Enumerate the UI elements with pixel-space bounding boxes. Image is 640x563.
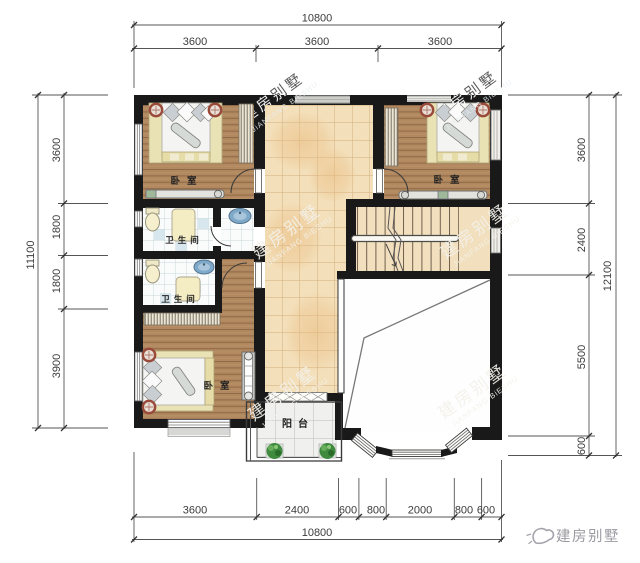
svg-text:2400: 2400: [576, 228, 588, 252]
svg-text:1800: 1800: [51, 215, 63, 239]
svg-text:3900: 3900: [51, 354, 63, 378]
svg-text:卫生间: 卫生间: [165, 235, 203, 245]
svg-text:10800: 10800: [302, 13, 333, 25]
svg-text:10800: 10800: [302, 527, 333, 539]
svg-text:800: 800: [455, 505, 473, 517]
svg-text:5500: 5500: [576, 345, 588, 369]
svg-text:卫生间: 卫生间: [161, 294, 199, 304]
svg-text:卧室: 卧室: [203, 380, 236, 392]
svg-text:3600: 3600: [576, 138, 588, 162]
svg-text:3600: 3600: [428, 36, 452, 48]
svg-text:3600: 3600: [51, 138, 63, 162]
svg-text:2400: 2400: [285, 505, 309, 517]
svg-text:600: 600: [339, 505, 357, 517]
svg-text:800: 800: [367, 505, 385, 517]
svg-text:1800: 1800: [51, 269, 63, 293]
svg-text:3600: 3600: [305, 36, 329, 48]
svg-text:600: 600: [477, 505, 495, 517]
svg-text:卧室: 卧室: [433, 174, 466, 186]
svg-text:2000: 2000: [408, 505, 432, 517]
svg-text:3600: 3600: [183, 505, 207, 517]
svg-text:3600: 3600: [183, 36, 207, 48]
svg-text:12100: 12100: [602, 261, 614, 292]
svg-text:11100: 11100: [25, 241, 37, 270]
svg-text:600: 600: [576, 437, 588, 455]
svg-text:卧室: 卧室: [170, 175, 203, 187]
svg-text:建房别墅: 建房别墅: [556, 528, 620, 545]
svg-text:阳台: 阳台: [282, 417, 314, 430]
